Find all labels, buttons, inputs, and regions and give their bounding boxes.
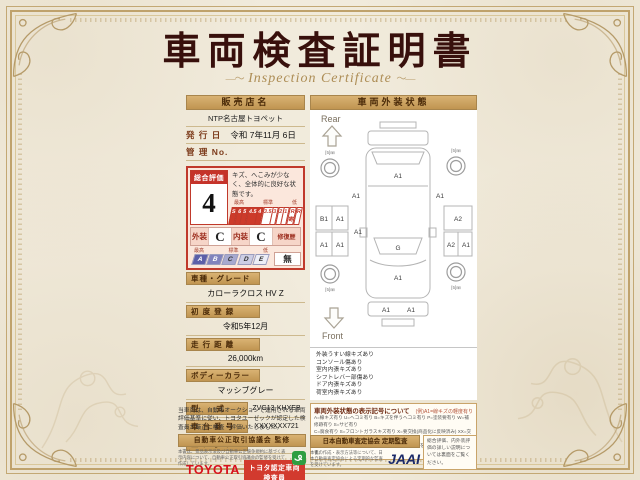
note-line: 外装うすい線キズあり <box>316 352 471 360</box>
field-body-color: ボディーカラー マッシブグレー <box>186 367 305 400</box>
exterior-grade: C <box>208 228 232 245</box>
note-line: ドア内張キズあり <box>316 382 471 390</box>
note-line: 荷室内張キズあり <box>316 390 471 398</box>
watermark-flourish <box>30 340 150 460</box>
manage-no-label: 管 理 No. <box>186 146 228 158</box>
field-value: カローラクロス HV Z <box>186 288 305 299</box>
page-title: 車両検査証明書 <box>0 20 640 75</box>
assessor-text: 本書の作成・表示方法等について、日本自動車査定協会による定期的な監査を受けていま… <box>310 450 385 468</box>
field-label: ボディーカラー <box>186 369 260 382</box>
repair-history-value: 無 <box>274 252 301 266</box>
field-label: 車種・グレード <box>186 272 260 285</box>
green-certification-icon <box>292 451 306 465</box>
zone-right-front-door: A2 <box>447 242 455 249</box>
zone-right-front-fender: A1 <box>462 242 470 249</box>
marker-low: 低 <box>263 248 268 254</box>
grade-scale-markers: 最高 標準 低 <box>230 200 301 206</box>
back-side-note: 総合評価、内外装評価の詳しい説明については裏面をご覧ください。 <box>423 435 477 470</box>
dealer-name: NTP名古屋トヨペット <box>186 110 305 127</box>
issue-date-row: 発 行 日 令和 7年11月 6日 <box>186 127 305 144</box>
tire-tread-label: [5]㎜ <box>451 148 461 153</box>
subtitle-flourish: —〜 <box>226 74 244 85</box>
interior-grade: C <box>249 228 273 245</box>
zone-left-body-side: A1 <box>354 229 362 236</box>
zone-right-rear-door: A2 <box>454 216 462 223</box>
zone-left-rear-door-inner: A1 <box>336 216 344 223</box>
note-line: 室内内張キズあり <box>316 367 471 375</box>
watermark-flourish <box>505 320 635 460</box>
overall-evaluation-box: 総合評価 4 キズ、へこみが少なく、全体的に良好な状態です。 最高 標準 低 S… <box>186 166 305 270</box>
zone-hood: A1 <box>394 275 402 282</box>
exterior-condition-header: 車両外装状態 <box>310 95 477 110</box>
dealer-header: 販売店名 <box>186 95 305 110</box>
evaluation-comment: キズ、へこみが少なく、全体的に良好な状態です。 <box>230 170 301 200</box>
corner-ornament-icon <box>8 398 82 472</box>
front-arrow-icon <box>325 308 343 328</box>
zone-labels: A1 A1 A1 B1 A1 A1 A1 A1 A2 A2 A1 G A1 A1… <box>320 173 470 314</box>
note-line: コンソール傷あり <box>316 360 471 368</box>
assessor-header: 日本自動車査定協会 定期監査 <box>310 435 420 448</box>
overall-grade-value: 4 <box>191 184 227 224</box>
letter-scale-cell: E <box>252 254 270 265</box>
rear-arrow-icon <box>323 126 341 146</box>
note-line: シフトレバー部傷あり <box>316 375 471 383</box>
subtitle-text: Inspection Certificate <box>248 71 392 86</box>
zone-left-front-door-outer: A1 <box>320 242 328 249</box>
marker-mid: 標準 <box>263 200 273 206</box>
overall-grade-header: 総合評価 <box>191 171 227 184</box>
field-first-registration: 初 度 登 録 令和5年12月 <box>186 303 305 336</box>
field-value: 令和5年12月 <box>186 321 305 332</box>
zone-windshield: G <box>395 245 400 252</box>
exterior-diagram-panel: Rear <box>310 110 477 400</box>
fair-trade-text: 本書は、景品表示法及び自動車公正競争規約に基づく表示内容について、自動車公正取引… <box>178 449 289 467</box>
bottom-right-block: 日本自動車査定協会 定期監査 本書の作成・表示方法等について、日本自動車査定協会… <box>310 435 477 470</box>
exterior-label: 外装 <box>191 228 208 245</box>
zone-front-bumper-left: A1 <box>382 307 390 314</box>
front-direction-label: Front <box>322 331 344 341</box>
legend-line: A=線キズ有り U=ヘコミ有り B=キズを伴うヘコミ有り P=塗装要有り W=補… <box>314 415 473 429</box>
field-value: 26,000km <box>186 354 305 363</box>
field-value: マッシブグレー <box>186 385 305 396</box>
page-subtitle: —〜 Inspection Certificate 〜— <box>0 70 640 87</box>
exterior-condition-column: 車両外装状態 Rear <box>310 95 477 460</box>
marker-high: 最高 <box>194 248 204 254</box>
repair-history-label: 修復歴 <box>273 228 300 245</box>
fair-trade-header: 自動車公正取引協議会 監修 <box>178 434 306 447</box>
legend-title: 車両外装状態の表示記号について <box>314 406 410 415</box>
field-model-grade: 車種・グレード カローラクロス HV Z <box>186 270 305 303</box>
field-mileage: 走 行 距 離 26,000km <box>186 336 305 367</box>
car-exterior-diagram: Rear <box>310 110 477 342</box>
exterior-interior-row: 外装 C 内装 C 修復歴 <box>190 227 301 246</box>
zone-right-quarter: A1 <box>436 193 444 200</box>
issue-date-label: 発 行 日 <box>186 129 221 141</box>
issue-date-value: 令和 7年11月 6日 <box>221 129 305 141</box>
tire-tread-label: [5]㎜ <box>325 150 335 155</box>
field-label: 初 度 登 録 <box>186 305 260 318</box>
field-label: 走 行 距 離 <box>186 338 260 351</box>
jaai-logo: JAAI <box>388 451 420 467</box>
certificate-page: 車両検査証明書 —〜 Inspection Certificate 〜— 販売店… <box>0 0 640 480</box>
overall-grade-box: 総合評価 4 <box>190 170 228 225</box>
zone-rear-gate: A1 <box>394 173 402 180</box>
tire-tread-label: [5]㎜ <box>451 285 461 290</box>
letter-scale: 最高 標準 低 A B C D E <box>190 248 272 266</box>
frame-edge-ornament <box>18 70 22 410</box>
bottom-left-block: 当車両は、自動車オークションで運用される車両評価基準に従い、トヨタユーゼックが認… <box>178 407 306 467</box>
tire-tread-label: [5]㎜ <box>325 287 335 292</box>
interior-label: 内装 <box>232 228 249 245</box>
zone-front-bumper-right: A1 <box>407 307 415 314</box>
marker-mid: 標準 <box>228 248 238 254</box>
zone-left-rear-door-outer: B1 <box>320 216 328 223</box>
condition-notes: 外装うすい線キズあり コンソール傷あり 室内内張キズあり シフトレバー部傷あり … <box>310 347 477 400</box>
rear-direction-label: Rear <box>321 114 341 124</box>
marker-low: 低 <box>292 200 297 206</box>
subtitle-flourish: 〜— <box>396 74 414 85</box>
manage-no-row: 管 理 No. <box>186 144 305 161</box>
marker-high: 最高 <box>234 200 244 206</box>
grade-scale: S 6 5 4.5 4 3.5 3 2 1 R寄 R <box>230 207 301 225</box>
zone-left-quarter: A1 <box>352 193 360 200</box>
frame-edge-ornament <box>618 70 622 410</box>
disclaimer-text: 当車両は、自動車オークションで運用される車両評価基準に従い、トヨタユーゼックが認… <box>178 407 306 432</box>
zone-left-front-door-inner: A1 <box>336 242 344 249</box>
corner-ornament-icon <box>558 398 632 472</box>
